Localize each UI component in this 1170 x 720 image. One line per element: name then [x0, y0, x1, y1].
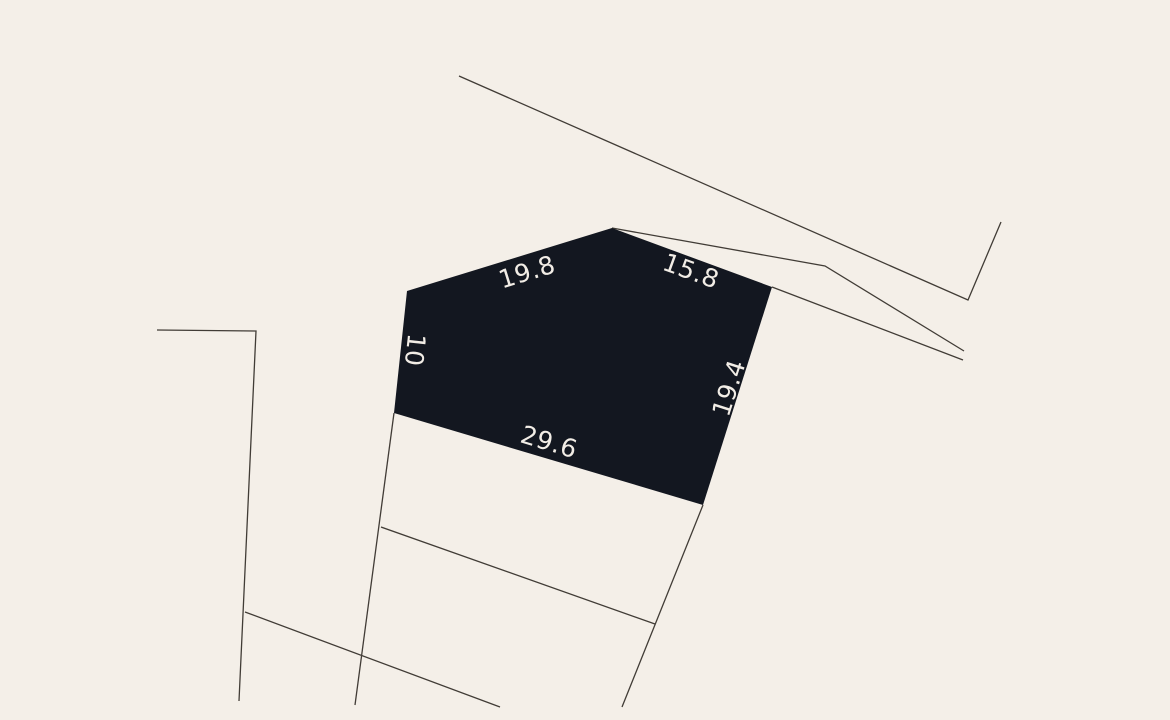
neighbor-boundary-below-left	[355, 413, 394, 705]
wedge-boundary-lower	[772, 287, 963, 360]
cadastral-map: 19.815.81019.429.6	[0, 0, 1170, 720]
neighbor-boundary-below-right	[622, 505, 703, 707]
neighbor-boundary-left	[157, 330, 256, 701]
edge-dimension-label-10: 10	[399, 332, 431, 368]
neighbor-diagonal-below	[381, 527, 655, 624]
neighbor-diagonal-left	[245, 612, 500, 707]
